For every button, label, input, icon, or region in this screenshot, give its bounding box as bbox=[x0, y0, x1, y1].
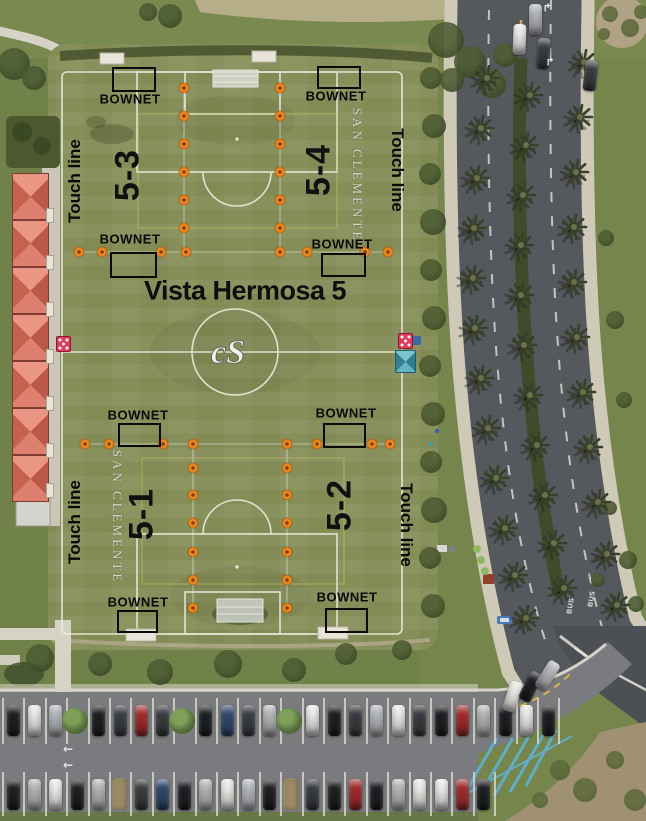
palm-tree bbox=[488, 511, 522, 545]
tree-canopy bbox=[88, 652, 112, 676]
bownet-goal-outline bbox=[317, 66, 361, 89]
parking-stall-line bbox=[216, 772, 218, 816]
field-marker bbox=[385, 439, 395, 449]
palm-tree bbox=[457, 211, 491, 245]
bownet-goal-outline bbox=[117, 610, 158, 633]
parked-car bbox=[542, 705, 555, 736]
parking-stall-line bbox=[23, 698, 25, 744]
parking-tree bbox=[169, 708, 195, 734]
parked-car bbox=[520, 705, 533, 736]
parked-car bbox=[477, 705, 490, 736]
parking-stall-line bbox=[473, 772, 475, 816]
field-marker bbox=[275, 111, 285, 121]
palm-tree bbox=[581, 485, 615, 519]
tree-canopy bbox=[22, 66, 46, 90]
bownet-goal-label: BOWNET bbox=[100, 92, 161, 107]
parking-stall-line bbox=[409, 772, 411, 816]
parking-stall-line bbox=[494, 772, 496, 816]
field-marker bbox=[275, 195, 285, 205]
bownet-goal-label: BOWNET bbox=[100, 232, 161, 247]
palm-tree bbox=[456, 261, 490, 295]
parking-stall-line bbox=[323, 772, 325, 816]
pavilion-bench bbox=[46, 302, 54, 317]
pavilion-bench bbox=[46, 396, 54, 411]
parked-car bbox=[135, 779, 148, 810]
scrub-bush bbox=[573, 778, 597, 802]
field-marker bbox=[104, 439, 114, 449]
parking-stall-line bbox=[88, 698, 90, 744]
pavilion-bench bbox=[46, 349, 54, 364]
bownet-goal-outline bbox=[323, 423, 366, 448]
field-marker bbox=[188, 490, 198, 500]
parking-stall-line bbox=[216, 698, 218, 744]
aisle-direction-arrow: ← bbox=[63, 758, 73, 772]
parked-car bbox=[114, 705, 127, 736]
parking-stall-line bbox=[88, 772, 90, 816]
scrub-bush bbox=[621, 19, 639, 37]
pavilion-canopy bbox=[12, 455, 49, 502]
parking-stall-line bbox=[558, 698, 560, 744]
parked-car bbox=[370, 779, 383, 810]
pavilion-bench bbox=[46, 483, 54, 498]
parking-stall-line bbox=[451, 772, 453, 816]
equipment-cart-right bbox=[398, 333, 413, 349]
field-number-label: 5-1 bbox=[123, 488, 162, 540]
field-number-label: 5-3 bbox=[109, 149, 148, 201]
palm-tree bbox=[547, 571, 581, 605]
tree-canopy bbox=[591, 573, 605, 587]
small-bush bbox=[473, 545, 481, 553]
parking-stall-line bbox=[173, 772, 175, 816]
parking-stall-line bbox=[494, 698, 496, 744]
parking-stall-line bbox=[302, 772, 304, 816]
parking-stall-line bbox=[23, 772, 25, 816]
parked-car bbox=[7, 705, 20, 736]
palm-tree bbox=[537, 526, 571, 560]
field-marker bbox=[74, 247, 84, 257]
pavilion-canopy bbox=[12, 173, 49, 220]
field-marker bbox=[181, 247, 191, 257]
field-number-label: 5-4 bbox=[300, 144, 339, 196]
palm-tree bbox=[458, 311, 492, 345]
palm-tree bbox=[479, 461, 513, 495]
tree-canopy bbox=[419, 163, 441, 185]
parking-planter bbox=[283, 778, 298, 810]
tree-canopy bbox=[26, 644, 54, 672]
palm-tree bbox=[590, 537, 624, 571]
parking-stall-line bbox=[195, 772, 197, 816]
scrub-bush bbox=[624, 789, 646, 811]
field-marker bbox=[282, 490, 292, 500]
touch-line-label: Touch line bbox=[65, 139, 85, 223]
bownet-goal-outline bbox=[110, 252, 157, 278]
field-marker bbox=[282, 603, 292, 613]
parking-stall-line bbox=[430, 772, 432, 816]
scrub-bush bbox=[532, 792, 548, 808]
parking-stall-line bbox=[237, 772, 239, 816]
palm-tree bbox=[600, 588, 634, 622]
scrub-bush bbox=[634, 5, 646, 19]
parked-car bbox=[306, 779, 319, 810]
field-marker bbox=[275, 83, 285, 93]
parked-car bbox=[328, 779, 341, 810]
tree-canopy bbox=[422, 114, 446, 138]
field-marker bbox=[179, 195, 189, 205]
tree-canopy bbox=[335, 643, 357, 665]
bownet-goal-label: BOWNET bbox=[316, 406, 377, 421]
palm-tree bbox=[464, 361, 498, 395]
tree-canopy bbox=[422, 306, 446, 330]
touch-line-label: Touch line bbox=[65, 480, 85, 564]
pavilion-canopy bbox=[12, 361, 49, 408]
field-marker bbox=[188, 463, 198, 473]
parked-car bbox=[199, 705, 212, 736]
field-number-label: 5-2 bbox=[321, 479, 360, 531]
parked-car bbox=[349, 705, 362, 736]
palm-tree bbox=[566, 375, 600, 409]
small-bush bbox=[481, 567, 489, 575]
scrub-bush bbox=[598, 28, 610, 40]
palm-tree bbox=[563, 100, 597, 134]
field-marker bbox=[275, 223, 285, 233]
palm-tree bbox=[464, 111, 498, 145]
parking-stall-line bbox=[130, 772, 132, 816]
palm-tree bbox=[506, 178, 540, 212]
tree-canopy bbox=[598, 230, 614, 246]
equipment-cart-left bbox=[56, 336, 71, 352]
turn-arrow-marking: ↱ bbox=[542, 2, 551, 15]
parking-stall-line bbox=[387, 772, 389, 816]
parked-car bbox=[221, 705, 234, 736]
field-marker bbox=[188, 547, 198, 557]
tree-canopy bbox=[421, 594, 445, 618]
palm-tree bbox=[470, 61, 504, 95]
parking-stall-line bbox=[152, 698, 154, 744]
parked-car bbox=[512, 24, 526, 55]
parked-car bbox=[392, 705, 405, 736]
field-marker bbox=[275, 167, 285, 177]
parked-car bbox=[370, 705, 383, 736]
field-marker bbox=[188, 575, 198, 585]
venue-name-paint: SAN CLEMENTE bbox=[349, 108, 365, 243]
pavilion-canopy bbox=[12, 408, 49, 455]
palm-tree bbox=[504, 228, 538, 262]
parked-car bbox=[435, 779, 448, 810]
parked-car bbox=[392, 779, 405, 810]
parked-car bbox=[71, 779, 84, 810]
bownet-goal-outline bbox=[118, 423, 161, 447]
field-marker bbox=[302, 247, 312, 257]
parked-car bbox=[349, 779, 362, 810]
parked-car bbox=[477, 779, 490, 810]
palm-tree bbox=[573, 430, 607, 464]
palm-tree bbox=[557, 210, 591, 244]
parked-car bbox=[529, 4, 542, 35]
parked-car bbox=[456, 705, 469, 736]
parked-car bbox=[49, 779, 62, 810]
parking-stall-line bbox=[387, 698, 389, 744]
parking-stall-line bbox=[537, 698, 539, 744]
parking-stall-line bbox=[66, 772, 68, 816]
parking-stall-line bbox=[302, 698, 304, 744]
bownet-goal-outline bbox=[112, 67, 156, 92]
parked-car bbox=[263, 779, 276, 810]
palm-tree bbox=[507, 328, 541, 362]
parked-car bbox=[413, 705, 426, 736]
parking-tree bbox=[276, 708, 302, 734]
small-bush bbox=[477, 556, 485, 564]
parked-car bbox=[135, 705, 148, 736]
aerial-map-scene: cS BOWNETBOWNETBOWNETBOWNETBOWNETBOWNETB… bbox=[0, 0, 646, 821]
parked-car bbox=[28, 705, 41, 736]
tree-canopy bbox=[616, 392, 632, 408]
tree-canopy bbox=[420, 67, 442, 89]
field-marker bbox=[179, 139, 189, 149]
parked-car bbox=[306, 705, 319, 736]
palm-tree bbox=[513, 78, 547, 112]
tree-canopy bbox=[419, 547, 441, 569]
field-marker bbox=[179, 223, 189, 233]
tree-canopy bbox=[420, 451, 442, 473]
palm-tree bbox=[513, 378, 547, 412]
palm-tree bbox=[528, 478, 562, 512]
parking-stall-line bbox=[45, 698, 47, 744]
parked-car bbox=[413, 779, 426, 810]
pavilion-canopy bbox=[12, 314, 49, 361]
field-marker bbox=[282, 575, 292, 585]
palm-tree bbox=[509, 128, 543, 162]
field-marker bbox=[367, 439, 377, 449]
palm-tree bbox=[471, 411, 505, 445]
club-logo: cS bbox=[211, 334, 245, 371]
bownet-goal-label: BOWNET bbox=[108, 595, 169, 610]
field-marker bbox=[179, 167, 189, 177]
field-marker bbox=[312, 439, 322, 449]
parking-stall-line bbox=[2, 772, 4, 816]
parking-stall-line bbox=[45, 772, 47, 816]
parked-car bbox=[328, 705, 341, 736]
palm-tree bbox=[460, 161, 494, 195]
field-marker bbox=[282, 439, 292, 449]
turn-arrow-marking: ↱ bbox=[545, 56, 554, 69]
field-marker bbox=[275, 139, 285, 149]
parked-car bbox=[28, 779, 41, 810]
palm-tree bbox=[520, 428, 554, 462]
parked-car bbox=[242, 779, 255, 810]
palm-tree bbox=[498, 558, 532, 592]
pavilion-bench bbox=[46, 255, 54, 270]
tree-canopy bbox=[420, 259, 442, 281]
parked-car bbox=[92, 705, 105, 736]
parked-car bbox=[435, 705, 448, 736]
map-title: Vista Hermosa 5 bbox=[144, 276, 346, 307]
pavilion-bench bbox=[46, 443, 54, 458]
tree-canopy bbox=[282, 658, 306, 682]
parked-car bbox=[92, 779, 105, 810]
parking-stall-line bbox=[259, 772, 261, 816]
parked-car bbox=[7, 779, 20, 810]
parking-stall-line bbox=[409, 698, 411, 744]
parked-car bbox=[156, 705, 169, 736]
parking-stall-line bbox=[195, 698, 197, 744]
parking-stall-line bbox=[109, 698, 111, 744]
parking-stall-line bbox=[237, 698, 239, 744]
pavilion-bench bbox=[46, 208, 54, 223]
parking-stall-line bbox=[451, 698, 453, 744]
scrub-bush bbox=[602, 6, 618, 22]
bownet-goal-label: BOWNET bbox=[108, 408, 169, 423]
parking-tree bbox=[62, 708, 88, 734]
field-marker bbox=[282, 547, 292, 557]
parked-car bbox=[199, 779, 212, 810]
touch-line-label: Touch line bbox=[387, 128, 407, 212]
parking-stall-line bbox=[109, 772, 111, 816]
field-marker bbox=[156, 247, 166, 257]
parked-car bbox=[263, 705, 276, 736]
tree-canopy bbox=[421, 402, 445, 426]
tree-canopy bbox=[420, 209, 446, 235]
tree-canopy bbox=[421, 497, 447, 523]
field-marker bbox=[188, 518, 198, 528]
tree-canopy bbox=[214, 650, 242, 678]
parking-stall-line bbox=[430, 698, 432, 744]
scrub-bush bbox=[606, 751, 624, 769]
bownet-goal-label: BOWNET bbox=[317, 590, 378, 605]
tree-canopy bbox=[147, 659, 173, 685]
parking-stall-line bbox=[280, 772, 282, 816]
bownet-goal-outline bbox=[321, 253, 366, 277]
pavilion-canopy bbox=[12, 220, 49, 267]
parked-car bbox=[221, 779, 234, 810]
field-marker bbox=[97, 247, 107, 257]
pavilion-canopy bbox=[12, 267, 49, 314]
field-marker bbox=[275, 247, 285, 257]
parked-car bbox=[242, 705, 255, 736]
tree-canopy bbox=[392, 640, 412, 660]
palm-tree bbox=[509, 601, 543, 635]
palm-tree bbox=[504, 278, 538, 312]
canopy-tent bbox=[395, 350, 416, 373]
parking-stall-line bbox=[366, 772, 368, 816]
parking-stall-line bbox=[344, 772, 346, 816]
field-marker bbox=[282, 463, 292, 473]
parked-car bbox=[178, 779, 191, 810]
parked-car bbox=[456, 779, 469, 810]
parked-car bbox=[156, 779, 169, 810]
parking-stall-line bbox=[323, 698, 325, 744]
palm-tree bbox=[557, 265, 591, 299]
venue-name-paint: SAN CLEMENTE bbox=[109, 450, 125, 585]
field-marker bbox=[188, 439, 198, 449]
parking-stall-line bbox=[152, 772, 154, 816]
parked-car bbox=[49, 705, 62, 736]
field-marker bbox=[282, 518, 292, 528]
touch-line-label: Touch line bbox=[396, 483, 416, 567]
parking-stall-line bbox=[344, 698, 346, 744]
field-marker bbox=[188, 603, 198, 613]
aisle-direction-arrow: ← bbox=[63, 742, 73, 756]
field-marker bbox=[179, 111, 189, 121]
tree-canopy bbox=[440, 68, 464, 92]
field-marker bbox=[179, 83, 189, 93]
parking-stall-line bbox=[2, 698, 4, 744]
tree-canopy bbox=[139, 3, 157, 21]
scrub-bush bbox=[550, 760, 570, 780]
field-marker bbox=[80, 439, 90, 449]
tree-canopy bbox=[158, 4, 182, 28]
bownet-goal-label: BOWNET bbox=[306, 89, 367, 104]
parking-stall-line bbox=[366, 698, 368, 744]
svg-text:cS: cS bbox=[211, 334, 245, 371]
palm-tree bbox=[559, 155, 593, 189]
palm-tree bbox=[560, 320, 594, 354]
parking-stall-line bbox=[259, 698, 261, 744]
field-marker bbox=[383, 247, 393, 257]
parking-stall-line bbox=[130, 698, 132, 744]
parking-stall-line bbox=[473, 698, 475, 744]
tree-canopy bbox=[606, 311, 624, 329]
bownet-goal-outline bbox=[325, 608, 368, 633]
tree-canopy bbox=[419, 355, 441, 377]
parking-planter bbox=[112, 778, 127, 810]
